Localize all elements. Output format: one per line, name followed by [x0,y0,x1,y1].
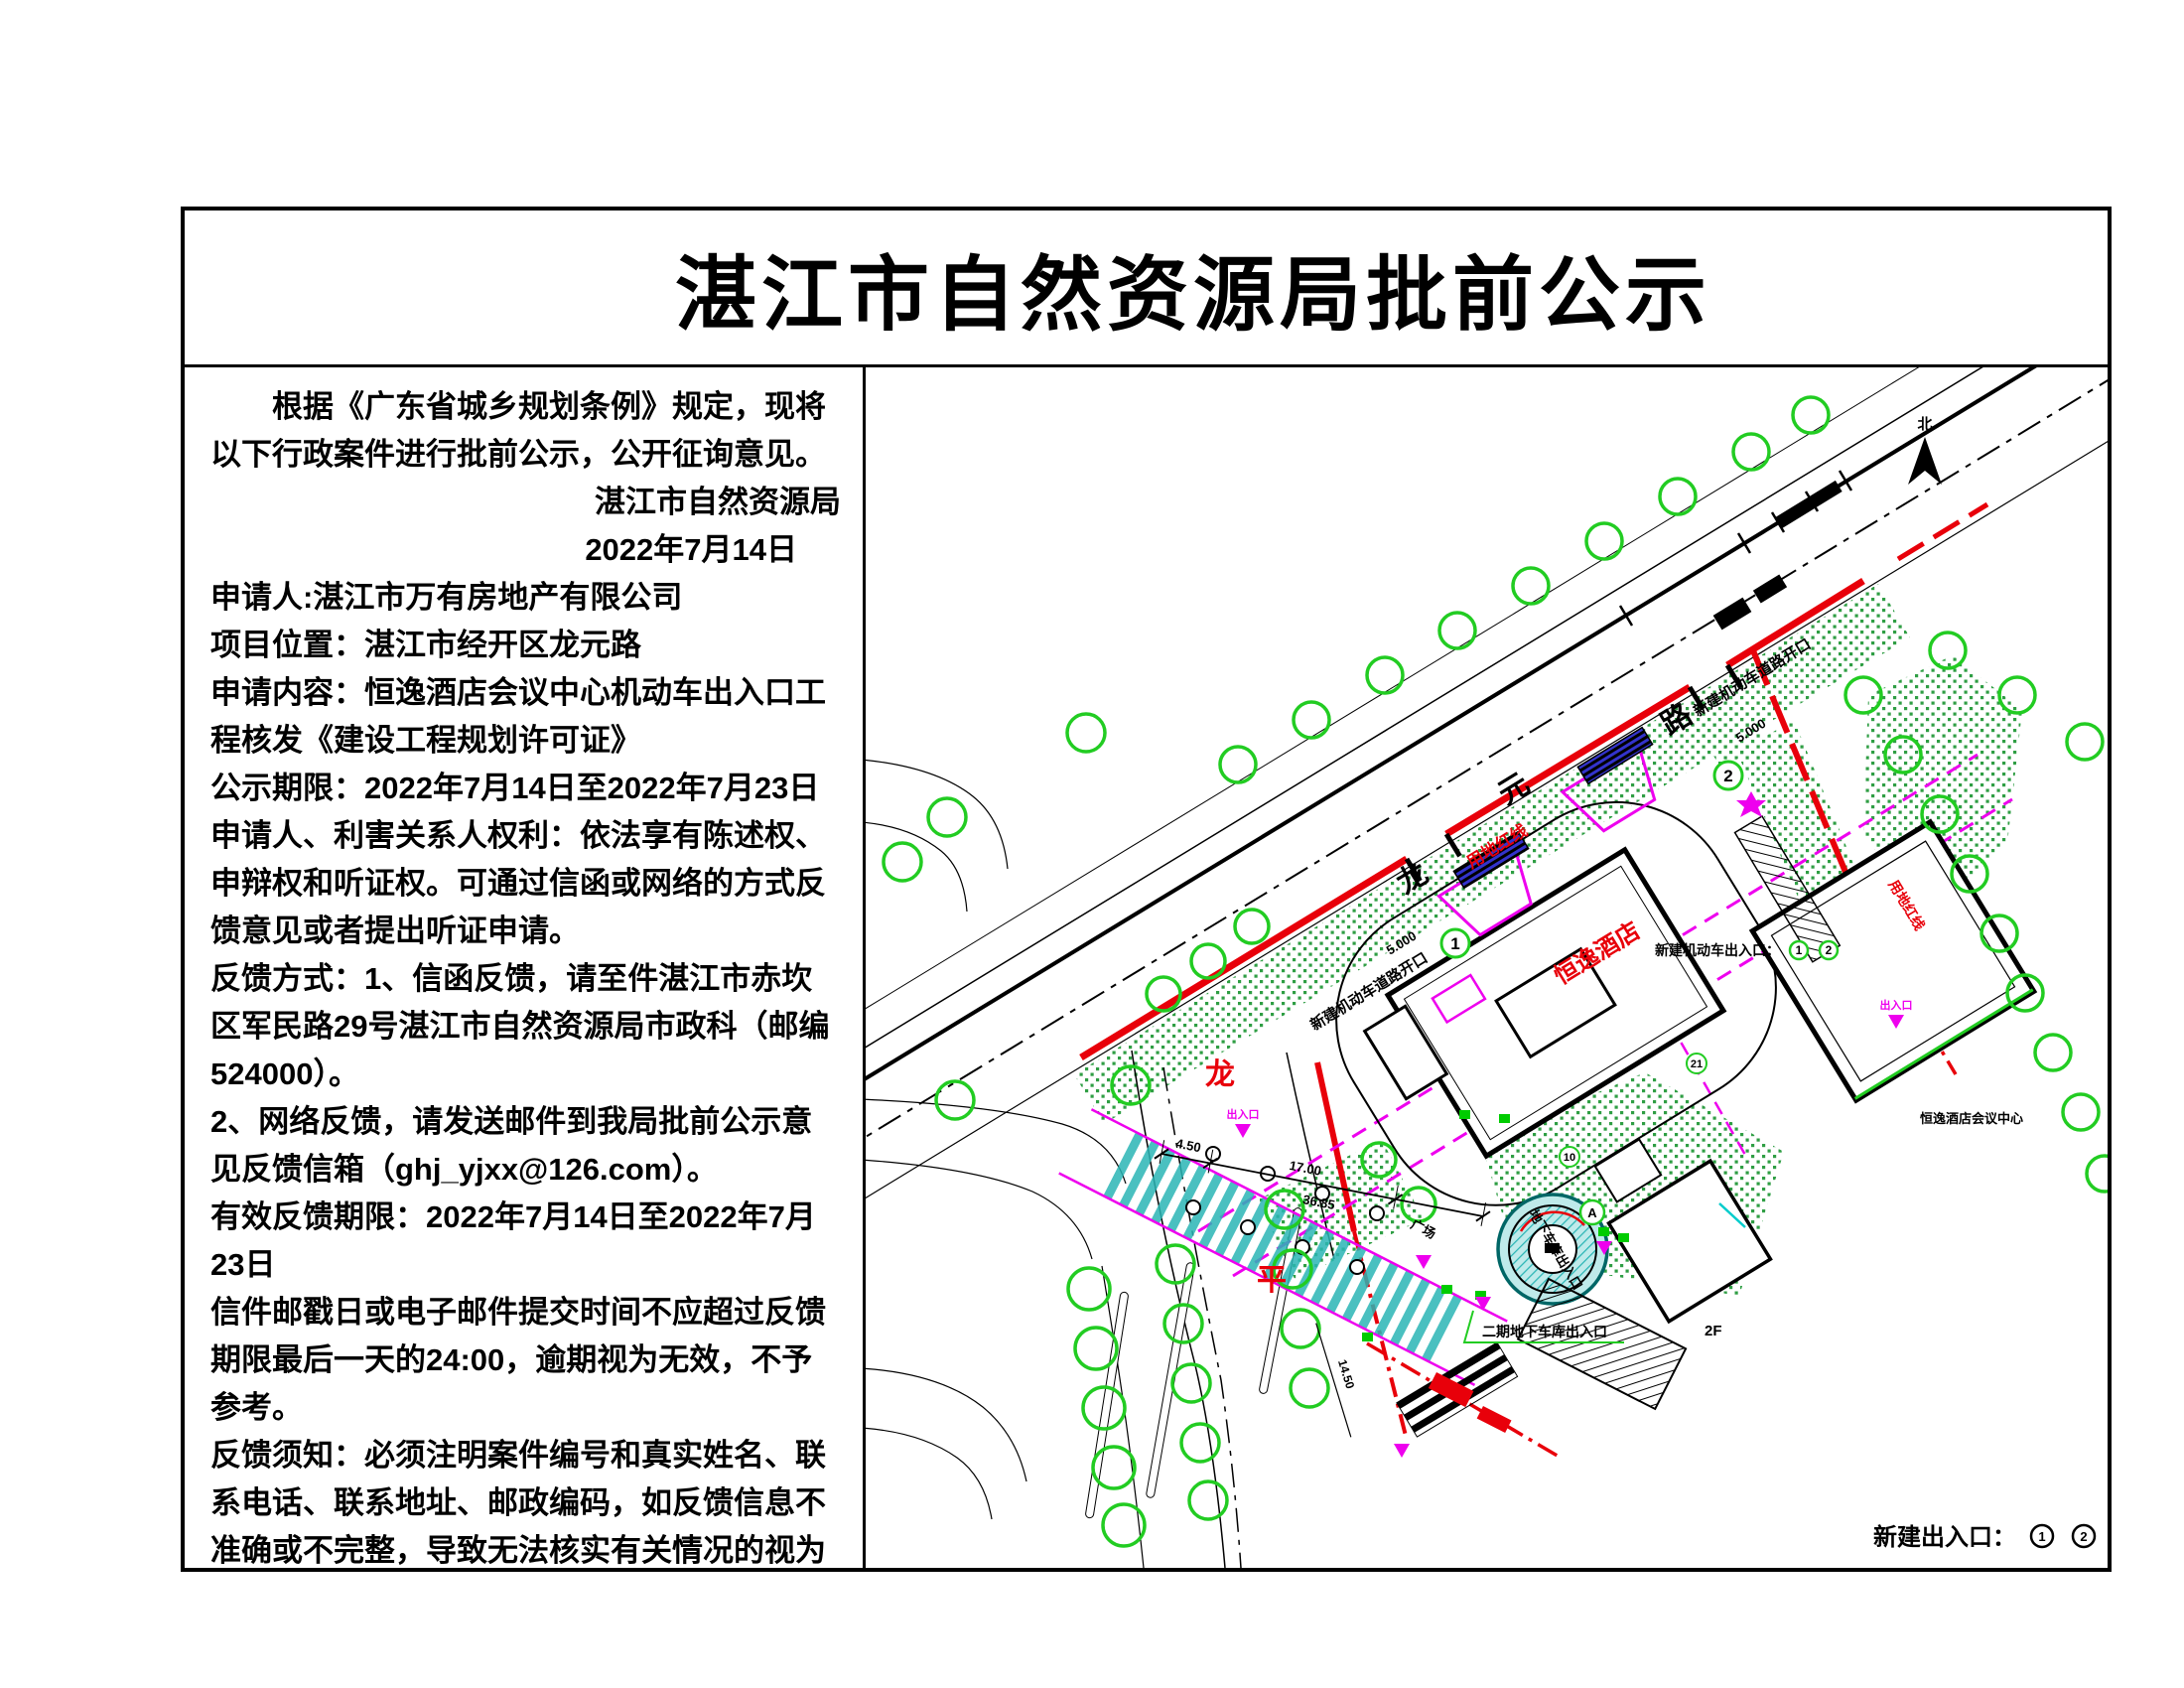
request-line: 申请内容：恒逸酒店会议中心机动车出入口工程核发《建设工程规划许可证》 [210,669,841,765]
notice-intro: 根据《广东省城乡规划条例》规定，现将以下行政案件进行批前公示，公开征询意见。 [210,383,841,479]
marker-21: 21 [1687,1054,1706,1073]
svg-text:新建机动车出入口：: 新建机动车出入口： [1655,942,1780,958]
page-title: 湛江市自然资源局批前公示 [675,228,1711,347]
site-plan-drawing: 4.50 17.00 36.85 14.50 龙 元 路 龙 平 用地红线 用地… [866,367,2108,1568]
applicant-line: 申请人:湛江市万有房地产有限公司 [210,574,841,622]
cross-road-char: 平 [1257,1264,1287,1297]
location-line: 项目位置：湛江市经开区龙元路 [210,622,841,669]
feedback-mail-paragraph: 反馈方式：1、信函反馈，请至件湛江市赤坎区军民路29号湛江市自然资源局市政科（邮… [210,955,841,1098]
signature-org: 湛江市自然资源局 [210,479,841,526]
deadline-note: 信件邮戳日或电子邮件提交时间不应超过反馈期限最后一天的24:00，逾期视为无效，… [210,1289,841,1432]
valid-period-line: 有效反馈期限：2022年7月14日至2022年7月23日 [210,1194,841,1289]
notice-text-panel: 根据《广东省城乡规划条例》规定，现将以下行政案件进行批前公示，公开征询意见。 湛… [185,367,866,1569]
feedback-net-paragraph: 2、网络反馈，请发送邮件到我局批前公示意见反馈信箱（ghj_yjxx@126.c… [210,1098,841,1194]
marker-a: A [1580,1200,1604,1224]
svg-text:21: 21 [1691,1058,1703,1070]
svg-text:北: 北 [1917,416,1932,433]
entrance-marker-2: 2 [1714,762,1742,789]
svg-text:二期地下车库出入口: 二期地下车库出入口 [1482,1324,1607,1339]
pedestrian-label: 出入口 [1227,1107,1260,1121]
period-line: 公示期限：2022年7月14日至2022年7月23日 [210,765,841,812]
signature-date: 2022年7月14日 [210,526,841,574]
svg-text:10: 10 [1564,1152,1575,1164]
svg-text:1: 1 [1796,943,1803,957]
rights-paragraph: 申请人、利害关系人权利：依法享有陈述权、申辩权和听证权。可通过信函或网络的方式反… [210,812,841,955]
cross-road-char: 龙 [1205,1058,1235,1091]
title-band: 湛江市自然资源局批前公示 [185,211,2108,367]
site-plan-panel: 4.50 17.00 36.85 14.50 龙 元 路 龙 平 用地红线 用地… [866,367,2108,1569]
svg-text:2: 2 [1826,943,1833,957]
document-frame: 湛江市自然资源局批前公示 根据《广东省城乡规划条例》规定，现将以下行政案件进行批… [181,207,2112,1572]
hotel-center-label: 恒逸酒店会议中心 [1920,1111,2023,1126]
require-note: 反馈须知：必须注明案件编号和真实姓名、联系电话、联系地址、邮政编码，如反馈信息不… [210,1432,841,1569]
svg-text:1: 1 [1450,934,1459,953]
pedestrian-label: 出入口 [1880,998,1913,1012]
svg-text:1: 1 [2038,1529,2045,1544]
legend-label: 新建出入口： [1873,1523,2016,1551]
svg-text:2: 2 [1723,767,1732,785]
entrance-marker-1: 1 [1441,929,1469,957]
marker-10: 10 [1560,1147,1579,1167]
svg-text:A: A [1587,1205,1597,1220]
svg-text:2: 2 [2080,1529,2087,1544]
floor-label: 2F [1705,1323,1722,1339]
